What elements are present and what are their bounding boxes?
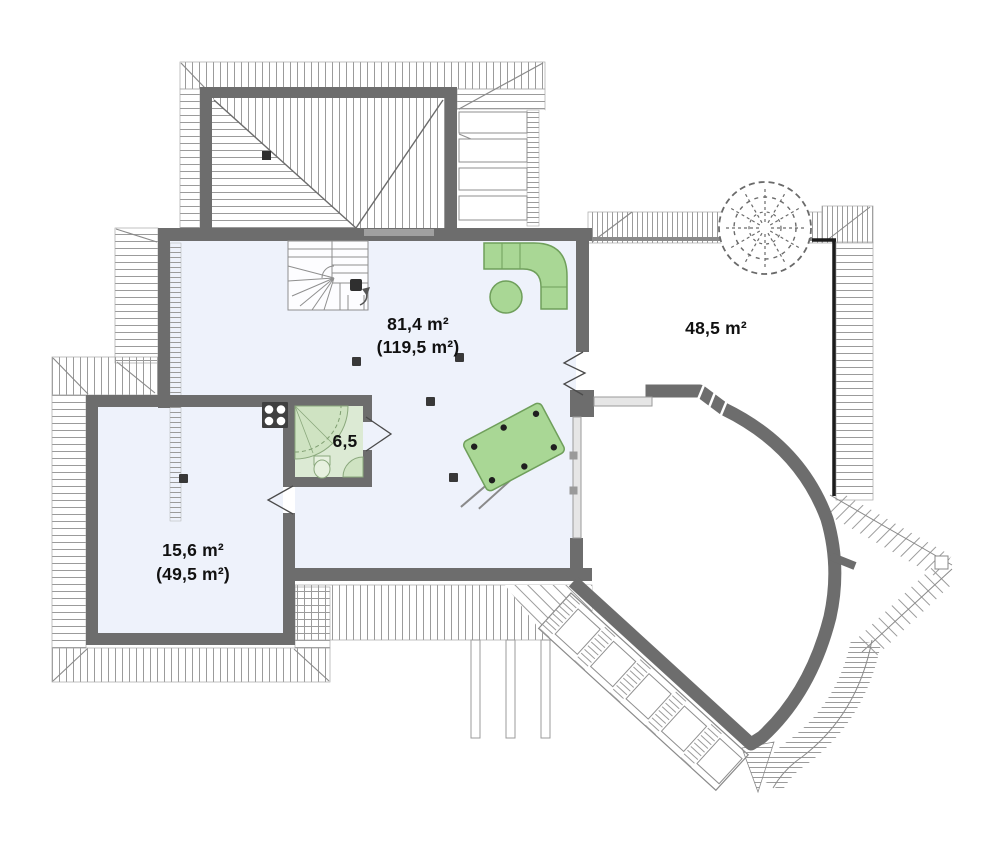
bedroom-floor <box>98 407 283 633</box>
stair-post <box>350 279 362 291</box>
glass-walls <box>570 397 652 538</box>
roof-post-marker <box>262 151 271 160</box>
living-total-area-label: (119,5 m²) <box>377 337 460 357</box>
bedroom-total-area-label: (49,5 m²) <box>156 564 230 584</box>
roof-post <box>471 640 480 738</box>
toilet <box>314 456 330 478</box>
wall-niche <box>364 229 434 236</box>
winder-staircase <box>288 241 370 310</box>
roof-post <box>541 640 550 738</box>
terrace-area-label: 48,5 m² <box>685 318 747 338</box>
bedroom-area-label: 15,6 m² <box>162 540 224 560</box>
bathroom-area-label: 6,5 <box>333 431 358 451</box>
skylights-right-of-top-room <box>457 110 545 228</box>
roof-post <box>506 640 515 738</box>
roof-bottom-band <box>295 585 592 738</box>
living-area-label: 81,4 m² <box>387 314 449 334</box>
floor-plan: 81,4 m² (119,5 m²) 48,5 m² 6,5 15,6 m² (… <box>0 0 1000 847</box>
round-table <box>490 281 522 313</box>
stove <box>262 402 288 428</box>
roof-skylight-band-diagonal <box>539 593 749 790</box>
terrace-edge-line <box>812 240 836 496</box>
floor-plan-drawing: 81,4 m² (119,5 m²) 48,5 m² 6,5 15,6 m² (… <box>0 0 1000 847</box>
tree-symbol <box>719 182 811 274</box>
